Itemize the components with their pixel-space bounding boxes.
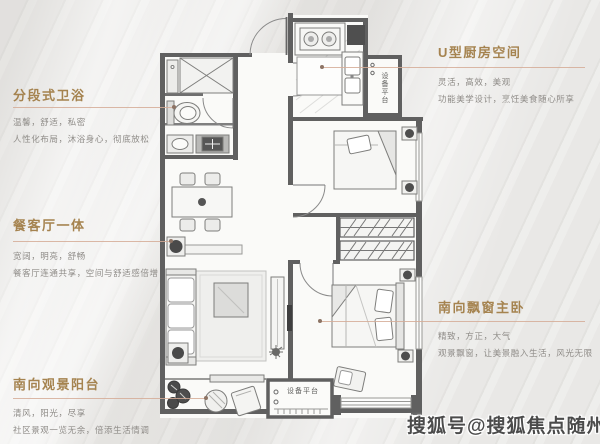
annotation-balcony-line2: 社区景观一览无余，倍添生活情调: [13, 422, 150, 439]
annotation-balcony-line1: 清风，阳光，尽享: [13, 405, 150, 422]
leader-dot-balcony: [204, 396, 208, 400]
leader-dot-dining: [169, 239, 173, 243]
watermark-text: 搜狐号@搜狐焦点随州站: [407, 411, 600, 438]
tv: [287, 305, 292, 331]
bath-cabinet: [167, 60, 178, 93]
annotation-bathroom-line2: 人性化布局，沐浴身心，彻底放松: [13, 131, 150, 148]
annotation-dining-living-line2: 餐客厅连通共享，空间与舒适感倍增: [13, 265, 159, 282]
annotation-master-bedroom: 南向飘窗主卧 精致，方正，大气 观景飘窗，让美景融入生活，风光无限: [438, 297, 593, 362]
entry-door-arc: [250, 19, 287, 56]
fridge: [347, 25, 365, 45]
kitchen: [295, 23, 365, 105]
annotation-dining-living-line1: 宽阔，明亮，舒畅: [13, 248, 159, 265]
annotation-bathroom-line1: 温馨，舒适，私密: [13, 114, 150, 131]
master-pillow-1: [375, 289, 394, 313]
living-room: [166, 269, 292, 365]
dining-chair-3: [180, 219, 195, 231]
sideboard: [184, 245, 242, 254]
annotation-master-bedroom-line2: 观景飘窗，让美景融入生活，风光无限: [438, 345, 593, 362]
sofa-cushion-1: [168, 278, 194, 302]
living-plant: [172, 347, 184, 359]
annotation-dining-living: 餐客厅一体 宽阔，明亮，舒畅 餐客厅连通共享，空间与舒适感倍增: [13, 215, 159, 282]
annotation-balcony: 南向观景阳台 清风，阳光，尽享 社区景观一览无余，倍添生活情调: [13, 374, 150, 439]
leader-dot-master: [318, 319, 322, 323]
table-centerpiece: [198, 198, 206, 206]
annotation-master-bedroom-title: 南向飘窗主卧: [438, 297, 593, 316]
dining-chair-4: [205, 219, 220, 231]
annotation-kitchen: U型厨房空间 灵活，高效，美观 功能美学设计，烹饪美食随心所享: [438, 42, 575, 108]
balcony-slider-panel: [210, 375, 264, 382]
annotation-dining-living-title: 餐客厅一体: [13, 215, 159, 234]
master-headboard: [396, 283, 404, 349]
annotation-kitchen-title: U型厨房空间: [438, 42, 575, 61]
annotation-bathroom: 分段式卫浴 温馨，舒适，私密 人性化布局，沐浴身心，彻底放松: [13, 85, 150, 148]
annotation-kitchen-line1: 灵活，高效，美观: [438, 74, 575, 91]
leader-dot-bathroom: [172, 105, 176, 109]
balcony-plant-3: [168, 398, 179, 409]
annotation-master-bedroom-line1: 精致，方正，大气: [438, 328, 593, 345]
equipment-platform-top-label: 设备平台: [379, 72, 389, 104]
sink-basin-2: [345, 78, 360, 93]
dining-chair-2: [205, 173, 220, 185]
annotation-balcony-title: 南向观景阳台: [13, 374, 150, 393]
balcony-table: [205, 390, 227, 412]
equipment-platform-bottom-label: 设备平台: [287, 386, 319, 396]
master-bay-window: [341, 398, 411, 408]
leader-dot-kitchen: [320, 65, 324, 69]
kitchen-worktop: [297, 57, 343, 95]
sofa-cushion-2: [168, 304, 194, 328]
annotation-kitchen-line2: 功能美学设计，烹饪美食随心所享: [438, 91, 575, 108]
annotation-bathroom-title: 分段式卫浴: [13, 85, 150, 104]
sink-basin-1: [345, 57, 360, 75]
page-background: { "annotations": { "left": [ {"title":"分…: [0, 0, 600, 444]
floorplan-drawing: [150, 5, 440, 425]
dining-chair-1: [180, 173, 195, 185]
